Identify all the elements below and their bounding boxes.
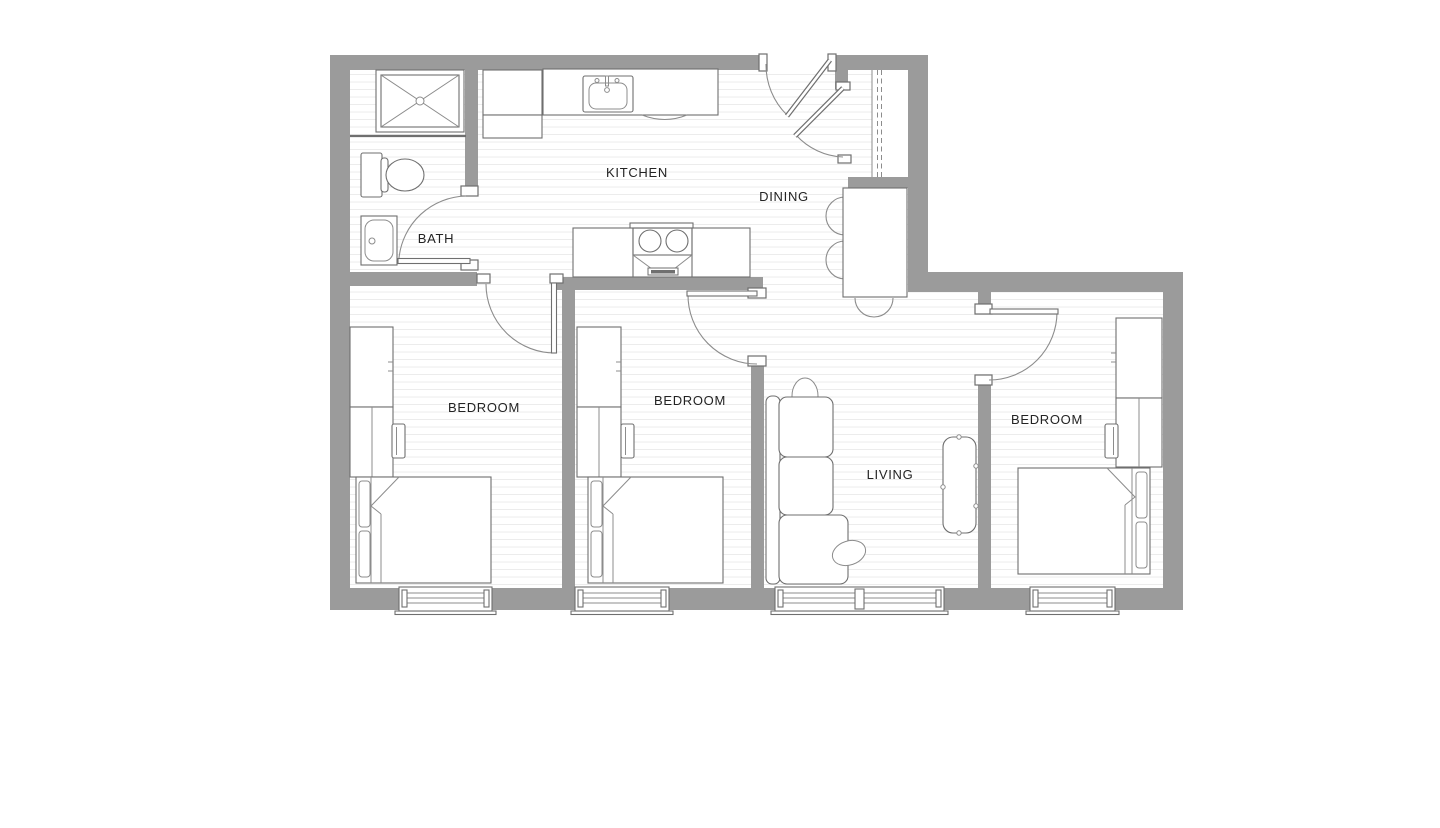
wall-left (330, 55, 350, 610)
bed (356, 477, 491, 583)
room-label-bedroom2: BEDROOM (654, 393, 726, 408)
floor-plan: KITCHEN DINING BATH BEDROOM BEDROOM LIVI… (0, 0, 1440, 828)
wall-bath-kitchen (465, 70, 478, 190)
pillow (1136, 522, 1147, 568)
window-living (771, 587, 948, 615)
wardrobe (577, 327, 621, 407)
window-mullion (855, 589, 864, 609)
entry-closet (872, 70, 908, 177)
wall-right (1163, 272, 1183, 610)
window-bedroom3 (1026, 587, 1119, 615)
wall-bath-bottom (350, 272, 477, 286)
wardrobe (1116, 318, 1162, 398)
pillow (359, 531, 370, 577)
coffee-table (941, 435, 978, 535)
refrigerator (483, 70, 542, 115)
desk-chair (392, 424, 405, 458)
wall-closet-bottom (848, 177, 908, 188)
shower (376, 70, 464, 132)
desk-chair (621, 424, 634, 458)
pillow (359, 481, 370, 527)
wall-upper-right-vertical (908, 55, 928, 292)
sofa-cushion (779, 457, 833, 515)
window-bedroom1 (395, 587, 496, 615)
pillow (591, 481, 602, 527)
wall-bedroom2-living (751, 362, 764, 588)
window-bedroom2 (571, 587, 673, 615)
pillow (591, 531, 602, 577)
refrigerator-door (483, 115, 542, 138)
pillow (1136, 472, 1147, 518)
wall-kitchen-south (557, 277, 763, 290)
room-label-dining: DINING (759, 189, 809, 204)
wardrobe (350, 327, 393, 407)
bed (1018, 468, 1150, 574)
dining-table (843, 188, 907, 297)
sofa-cushion (779, 397, 833, 457)
sofa-back (766, 396, 780, 584)
wall-bedroom3-top (908, 272, 1183, 292)
room-label-bedroom3: BEDROOM (1011, 412, 1083, 427)
wall-top-left (330, 55, 765, 70)
wall-bedroom1-bedroom2 (562, 290, 575, 588)
bed (588, 477, 723, 583)
wall-living-bedroom3 (978, 382, 991, 588)
range-back-edge (630, 223, 693, 228)
room-label-living: LIVING (867, 467, 914, 482)
room-label-bath: BATH (418, 231, 455, 246)
bathtub (361, 216, 397, 265)
room-label-kitchen: KITCHEN (606, 165, 668, 180)
kitchen-island (573, 223, 750, 277)
desk-chair (1105, 424, 1118, 458)
room-label-bedroom1: BEDROOM (448, 400, 520, 415)
